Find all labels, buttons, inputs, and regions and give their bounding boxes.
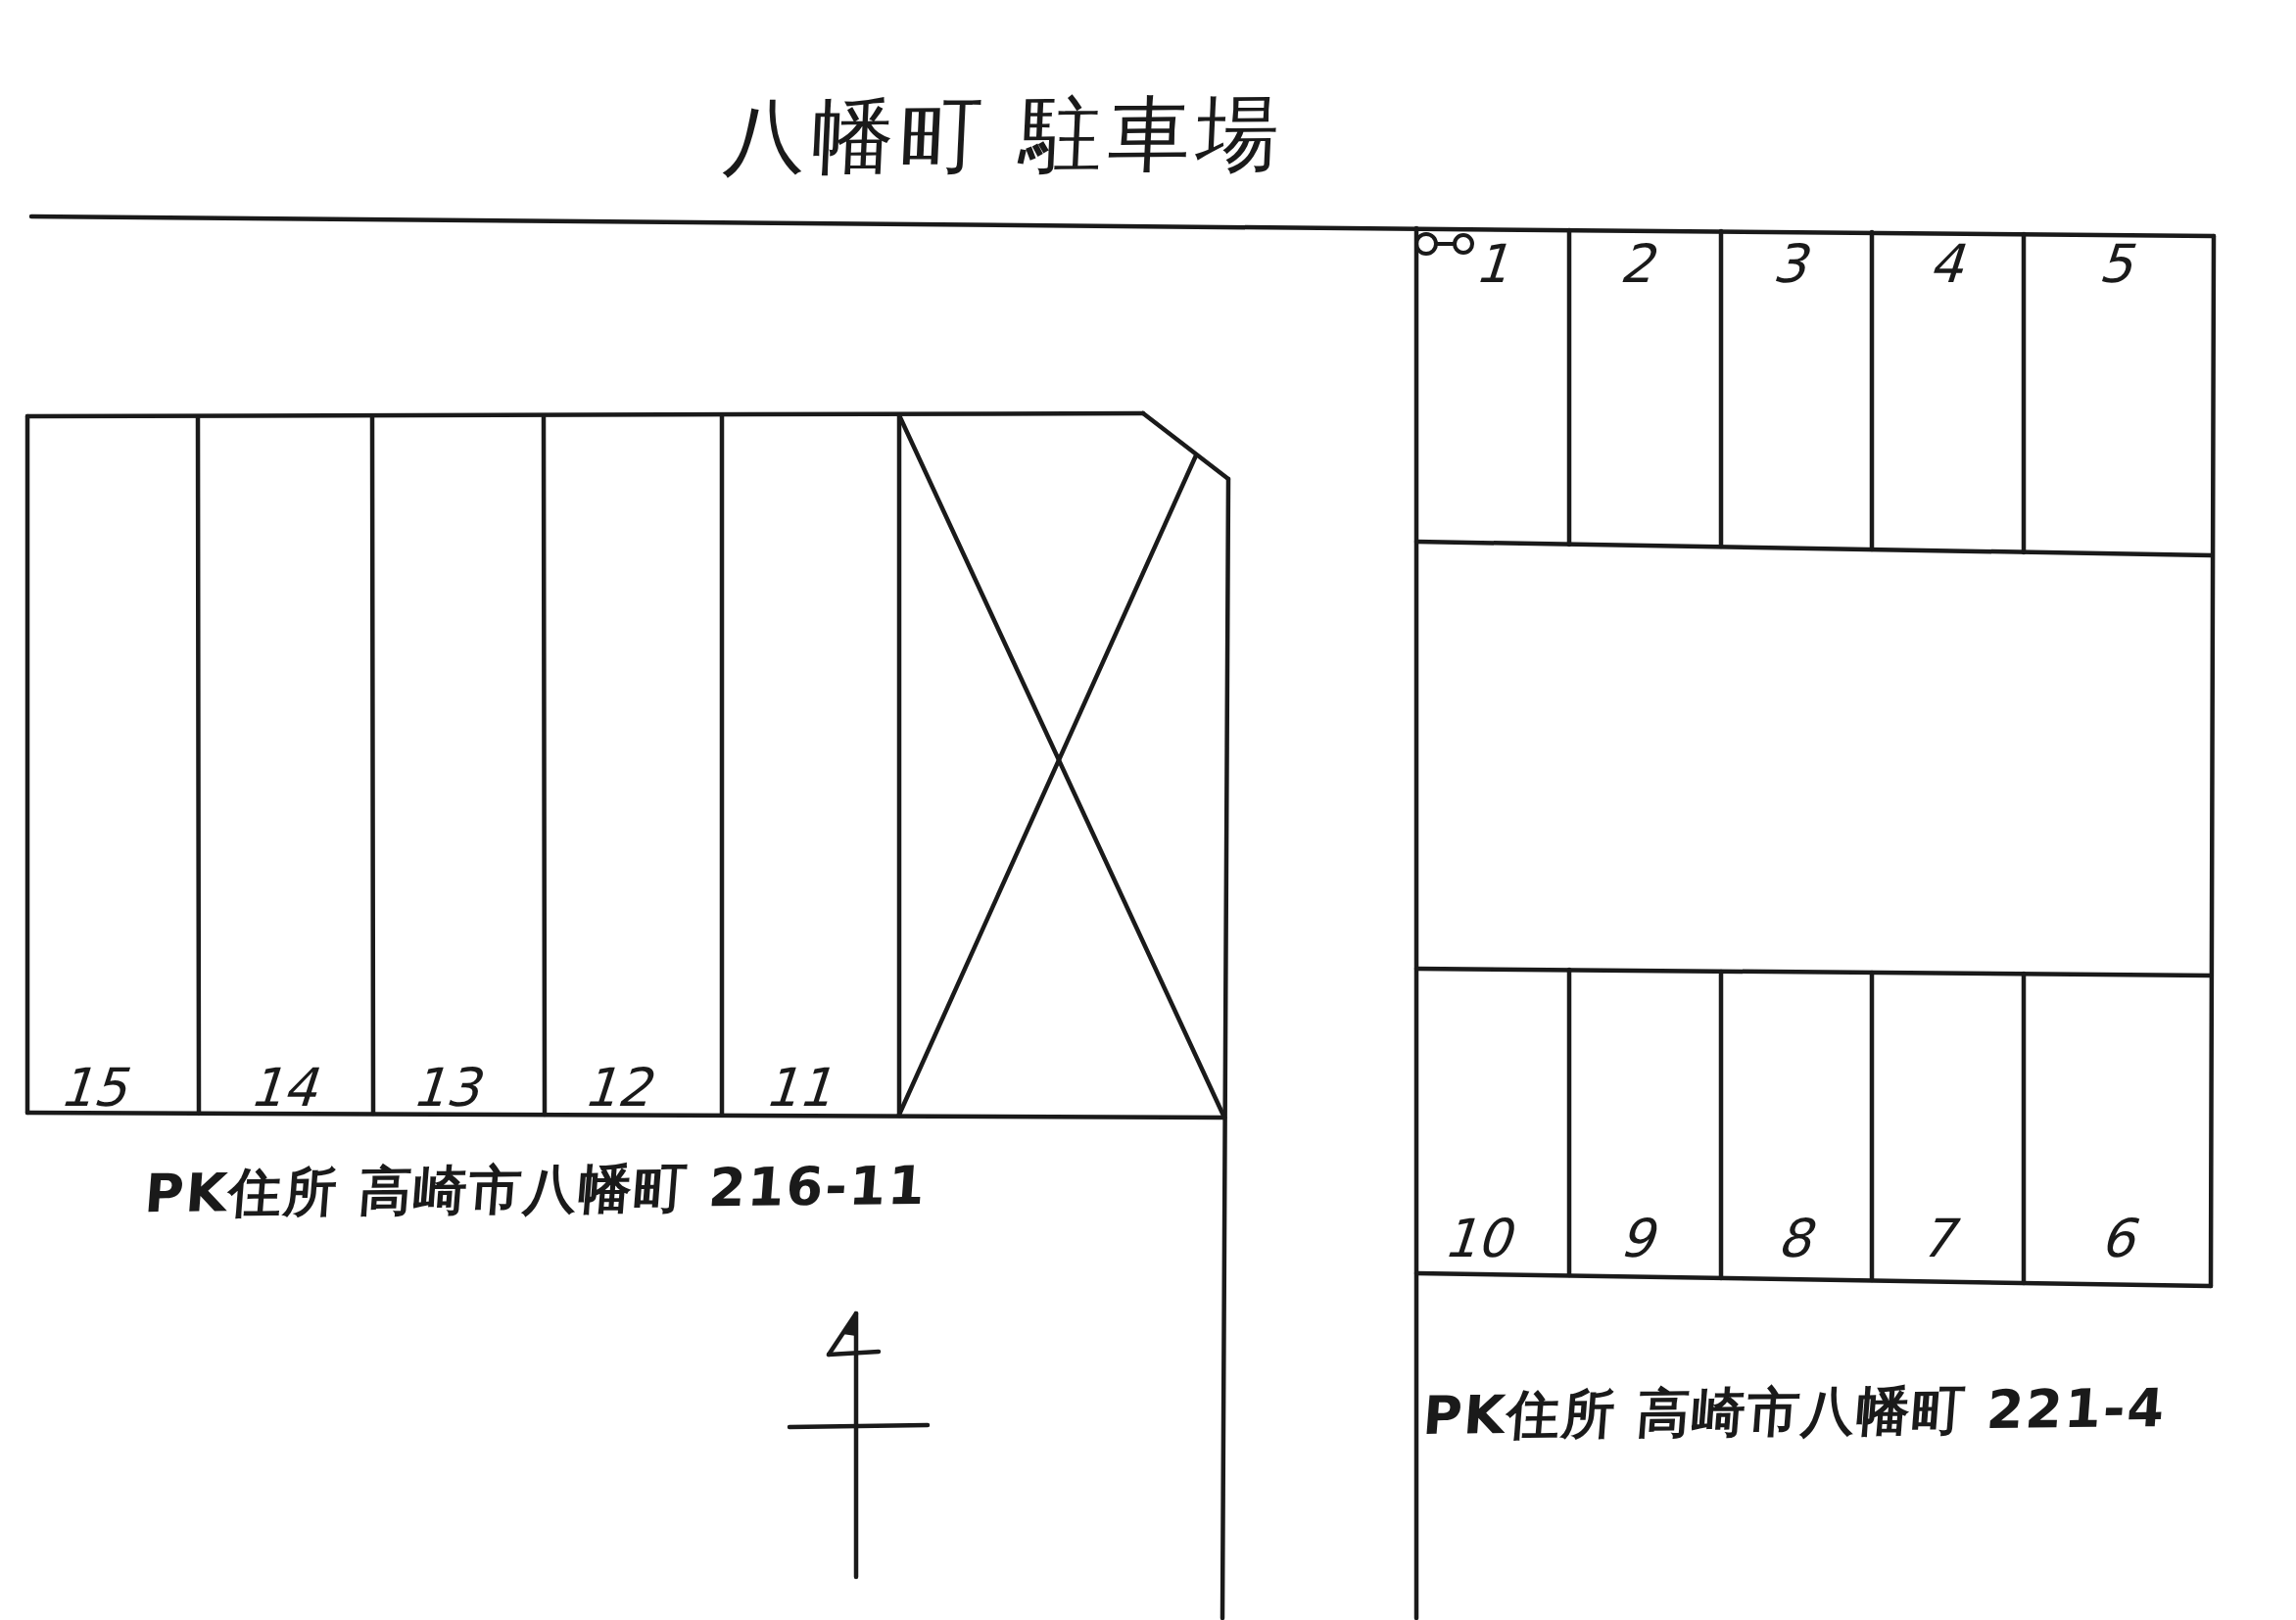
stall-label-5: 5	[2097, 238, 2134, 291]
parking-map-document: 八幡町 駐車場 15 14 13 12 11 1 2 3 4 5 10 9 8 …	[0, 0, 2296, 1620]
cross-line	[899, 455, 1196, 1115]
stall-divider	[372, 417, 373, 1114]
left-lot-top-edge	[27, 413, 1143, 416]
stall-label-14: 14	[248, 1062, 318, 1115]
right-lot-top-outline	[1416, 230, 2214, 1286]
stall-label-15: 15	[58, 1062, 128, 1115]
page-title: 八幡町 駐車場	[722, 92, 1287, 178]
right-lot-bottom-top-edge	[1416, 969, 2211, 976]
right-lot-address: PK住所 高崎市八幡町 221-4	[1421, 1382, 2169, 1443]
stall-label-13: 13	[410, 1062, 481, 1115]
right-lot-bottom-bottom-edge	[1416, 1273, 2211, 1286]
stall-divider	[198, 417, 199, 1114]
stall-label-1: 1	[1473, 238, 1510, 291]
stall-label-8: 8	[1776, 1213, 1813, 1265]
stall-label-10: 10	[1442, 1213, 1512, 1265]
stall-label-3: 3	[1771, 238, 1808, 291]
right-lot-bottom-outline	[1416, 969, 2211, 1286]
crossed-area-icon	[899, 415, 1224, 1118]
left-lot-address: PK住所 高崎市八幡町 216-11	[143, 1160, 929, 1220]
cross-line	[899, 415, 1224, 1118]
stall-label-2: 2	[1618, 238, 1655, 291]
stall-label-7: 7	[1919, 1213, 1956, 1265]
stall-divider	[544, 417, 545, 1115]
stall-label-4: 4	[1928, 238, 1965, 291]
gate-marker-icon	[1416, 234, 1472, 254]
north-arrow-crossbar	[789, 1425, 928, 1427]
gate-post	[1416, 234, 1436, 254]
stall-label-11: 11	[763, 1062, 834, 1115]
north-arrow-tick	[829, 1352, 879, 1355]
road-vertical-left-line	[1222, 479, 1228, 1618]
right-lot-right-edge	[2211, 236, 2214, 1286]
left-lot-outline	[27, 413, 1228, 1118]
stall-label-9: 9	[1618, 1213, 1655, 1265]
road-top-line	[31, 216, 2214, 236]
north-arrow-head	[842, 1313, 856, 1336]
gate-post	[1455, 235, 1472, 253]
left-lot-corner-cut	[1143, 413, 1228, 479]
right-lot-top-bottom-edge	[1416, 542, 2211, 555]
stall-label-6: 6	[2099, 1213, 2136, 1265]
north-arrow-icon	[789, 1313, 928, 1577]
stall-label-12: 12	[582, 1062, 652, 1115]
